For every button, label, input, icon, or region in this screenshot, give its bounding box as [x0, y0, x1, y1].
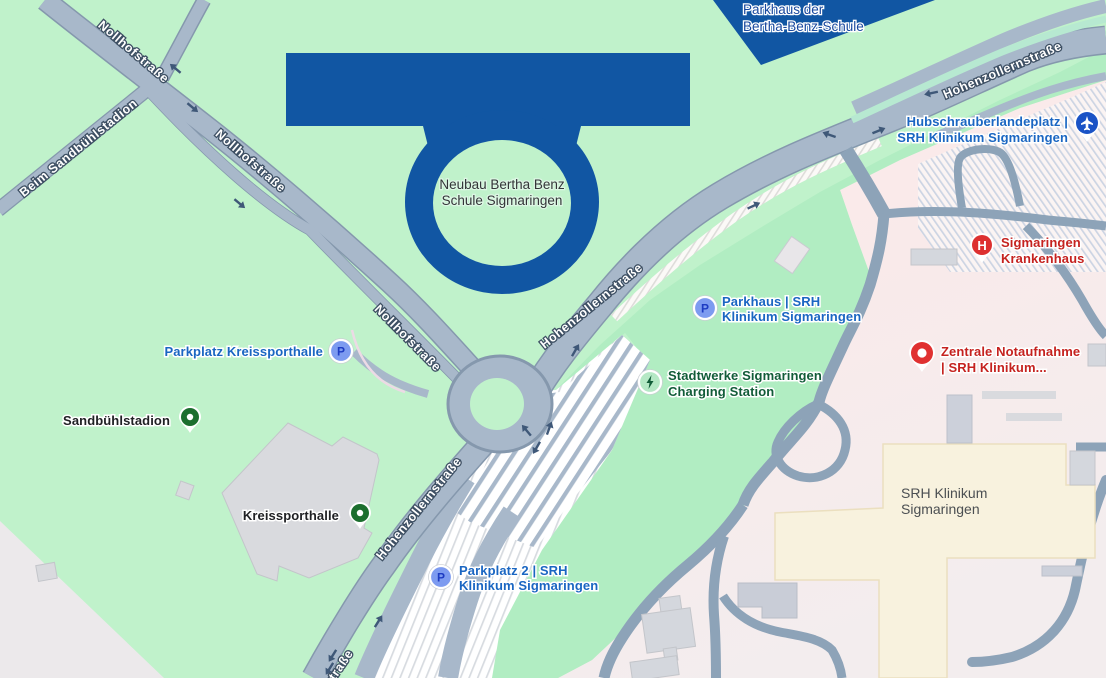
- svg-text:Klinikum Sigmaringen: Klinikum Sigmaringen: [459, 578, 598, 593]
- svg-text:Klinikum Sigmaringen: Klinikum Sigmaringen: [722, 309, 861, 324]
- svg-text:SRH Klinikum Sigmaringen: SRH Klinikum Sigmaringen: [897, 130, 1068, 145]
- svg-text:SRH Klinikum: SRH Klinikum: [901, 485, 987, 501]
- svg-text:P: P: [701, 302, 709, 316]
- svg-text:Bertha-Benz-Schule: Bertha-Benz-Schule: [743, 19, 864, 34]
- svg-text:Krankenhaus: Krankenhaus: [1001, 251, 1084, 266]
- svg-text:Parkhaus | SRH: Parkhaus | SRH: [722, 294, 820, 309]
- svg-text:| SRH Klinikum...: | SRH Klinikum...: [941, 360, 1047, 375]
- svg-text:Hubschrauberlandeplatz |: Hubschrauberlandeplatz |: [907, 114, 1068, 129]
- svg-text:H: H: [977, 238, 986, 253]
- svg-text:P: P: [437, 571, 445, 585]
- svg-text:Neubau Bertha Benz: Neubau Bertha Benz: [439, 177, 565, 192]
- svg-text:Sigmaringen: Sigmaringen: [1001, 235, 1081, 250]
- svg-text:Zentrale Notaufnahme: Zentrale Notaufnahme: [941, 344, 1080, 359]
- svg-text:Schule Sigmaringen: Schule Sigmaringen: [442, 193, 563, 208]
- svg-text:Charging Station: Charging Station: [668, 384, 774, 399]
- svg-text:Stadtwerke Sigmaringen: Stadtwerke Sigmaringen: [668, 368, 822, 383]
- svg-text:Sandbühlstadion: Sandbühlstadion: [63, 413, 170, 428]
- svg-text:Sigmaringen: Sigmaringen: [901, 501, 980, 517]
- svg-text:P: P: [337, 345, 345, 359]
- svg-text:Parkplatz Kreissporthalle: Parkplatz Kreissporthalle: [164, 344, 323, 359]
- svg-text:Parkplatz 2 | SRH: Parkplatz 2 | SRH: [459, 563, 568, 578]
- svg-text:Kreissporthalle: Kreissporthalle: [243, 508, 339, 523]
- svg-text:Parkhaus der: Parkhaus der: [743, 2, 824, 17]
